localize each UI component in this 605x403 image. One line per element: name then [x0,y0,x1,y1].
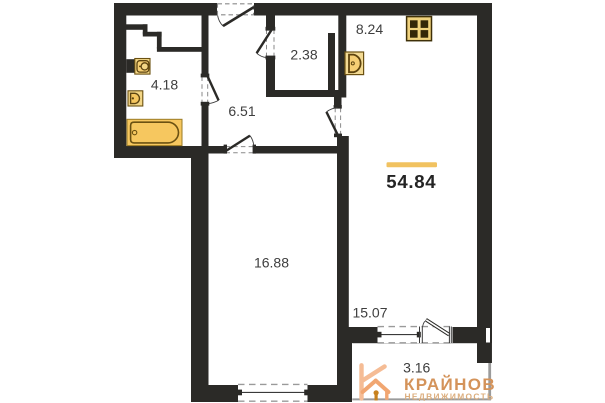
svg-text:16.88: 16.88 [254,254,289,270]
svg-text:2.38: 2.38 [290,46,317,62]
svg-text:6.51: 6.51 [228,103,255,119]
svg-text:15.07: 15.07 [352,305,387,321]
svg-text:3.16: 3.16 [403,359,430,375]
svg-text:4.18: 4.18 [151,76,178,92]
svg-text:НЕДВИЖИМОСТЬ: НЕДВИЖИМОСТЬ [405,391,495,401]
svg-text:54.84: 54.84 [386,171,436,192]
svg-text:8.24: 8.24 [356,21,383,37]
